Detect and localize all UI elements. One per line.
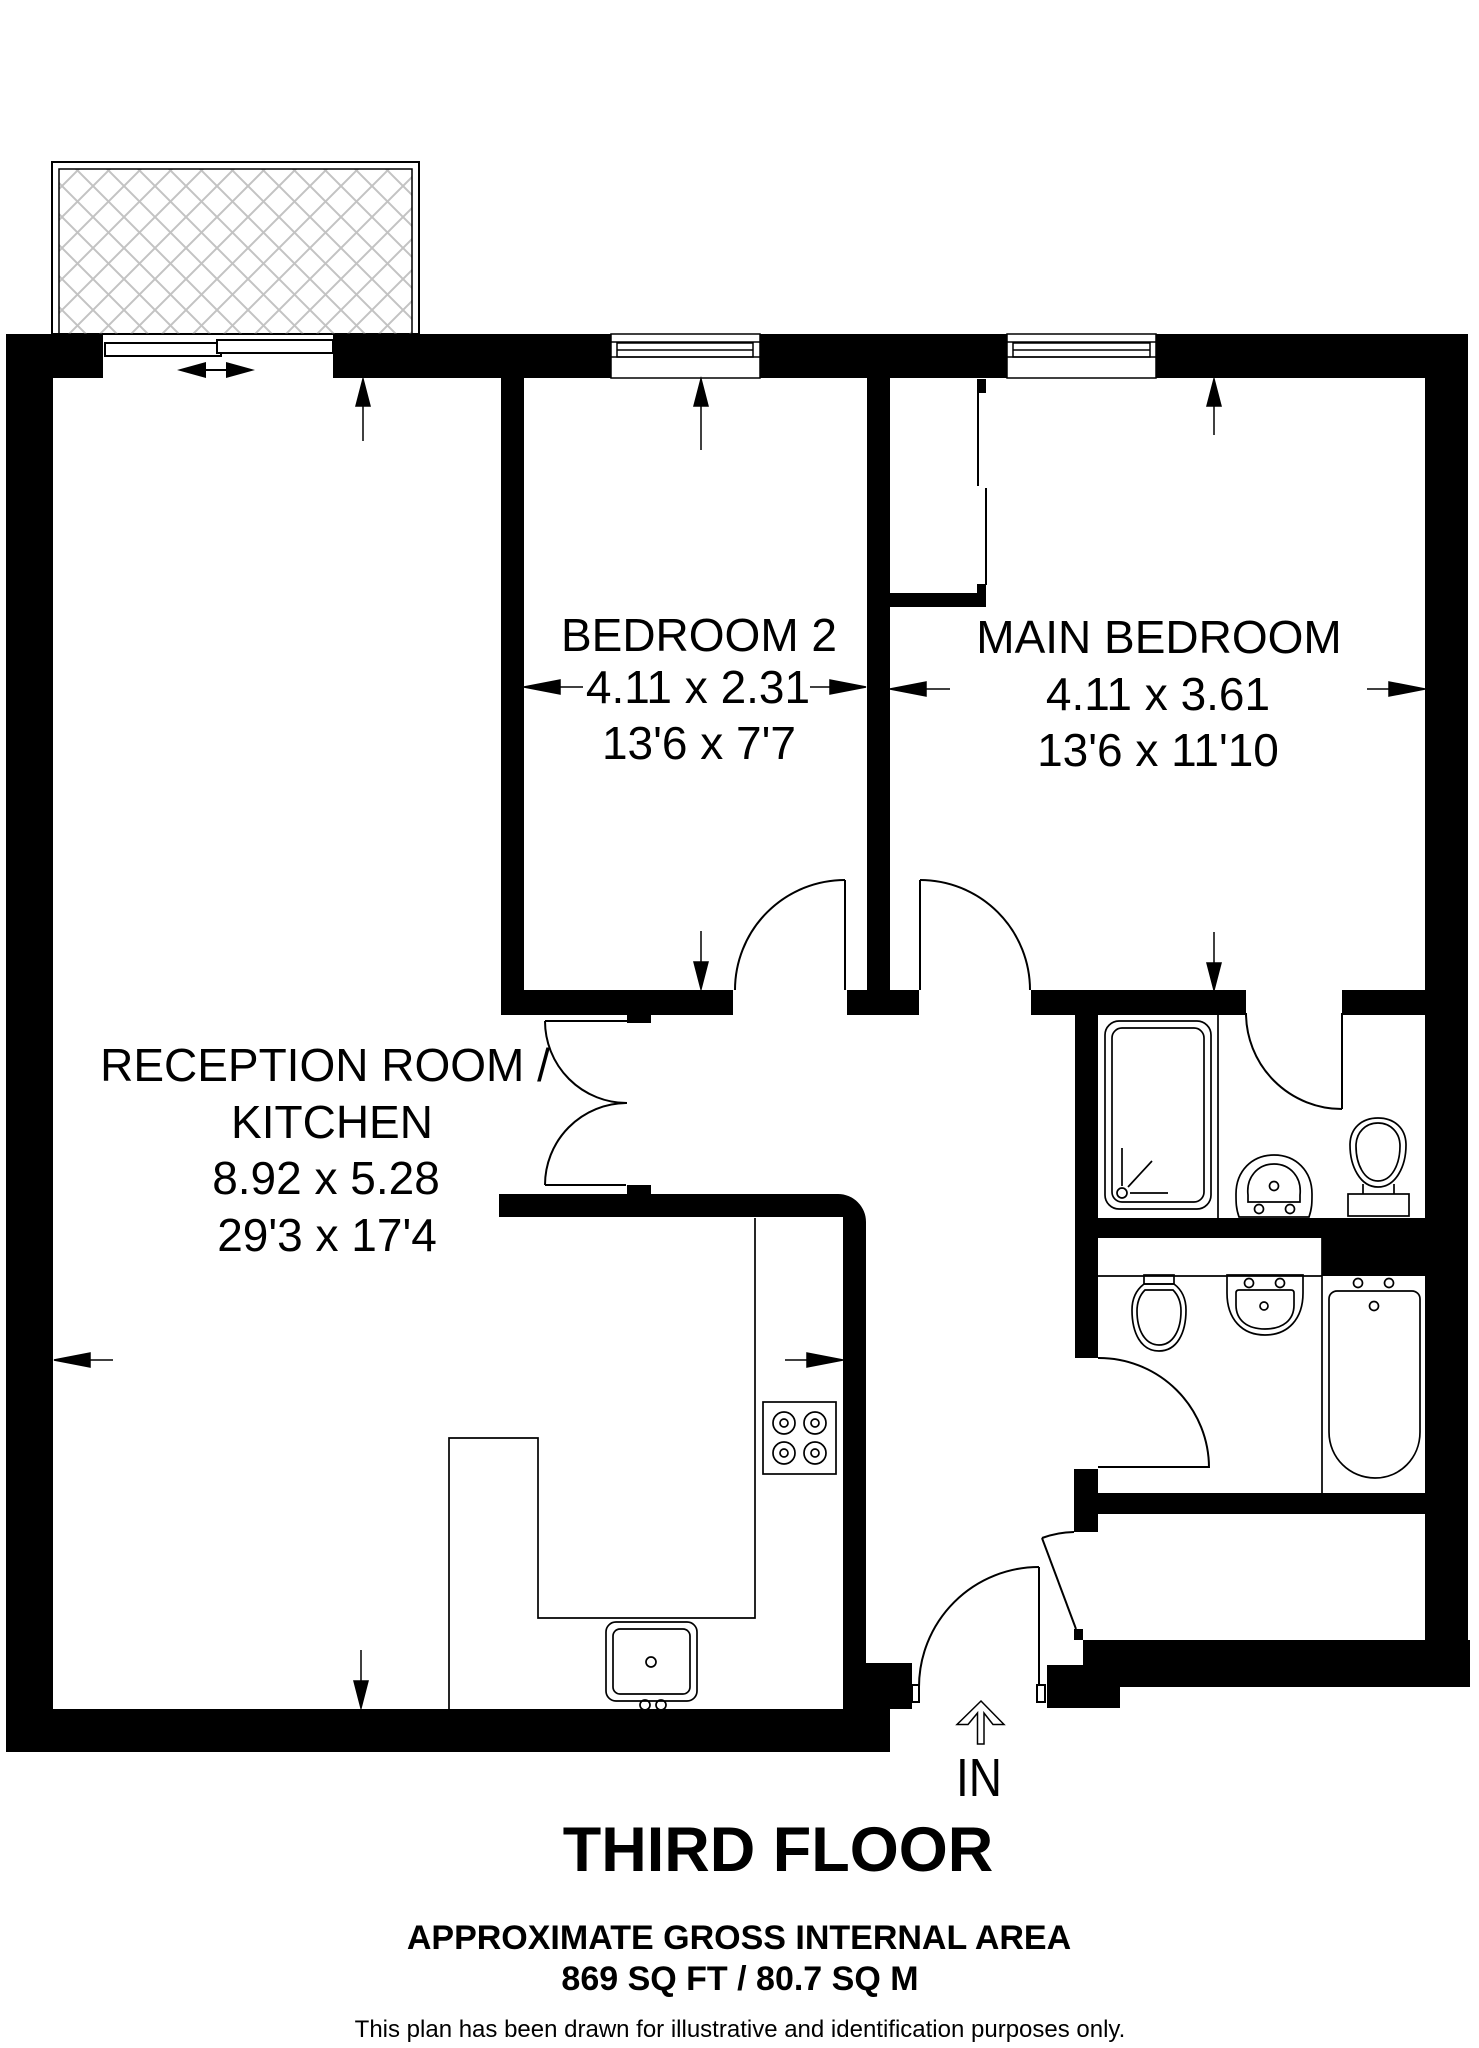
svg-text:4.11 x 2.31: 4.11 x 2.31	[586, 661, 810, 713]
svg-text:MAIN BEDROOM: MAIN BEDROOM	[976, 611, 1341, 663]
svg-text:8.92 x 5.28: 8.92 x 5.28	[212, 1152, 440, 1204]
svg-text:This plan has been drawn for i: This plan has been drawn for illustrativ…	[355, 2016, 1126, 2043]
svg-text:BEDROOM 2: BEDROOM 2	[561, 609, 837, 661]
svg-text:4.11 x 3.61: 4.11 x 3.61	[1046, 668, 1270, 720]
svg-text:869 SQ FT / 80.7 SQ M: 869 SQ FT / 80.7 SQ M	[561, 1960, 918, 1998]
svg-text:13'6 x 7'7: 13'6 x 7'7	[602, 717, 796, 769]
svg-text:IN: IN	[956, 1748, 1002, 1808]
svg-text:29'3 x 17'4: 29'3 x 17'4	[217, 1209, 437, 1261]
svg-text:KITCHEN: KITCHEN	[231, 1096, 433, 1148]
svg-text:THIRD FLOOR: THIRD FLOOR	[563, 1815, 993, 1885]
svg-text:RECEPTION ROOM /: RECEPTION ROOM /	[100, 1039, 550, 1091]
svg-text:APPROXIMATE GROSS INTERNAL ARE: APPROXIMATE GROSS INTERNAL AREA	[407, 1919, 1071, 1957]
svg-text:13'6 x 11'10: 13'6 x 11'10	[1037, 724, 1279, 776]
